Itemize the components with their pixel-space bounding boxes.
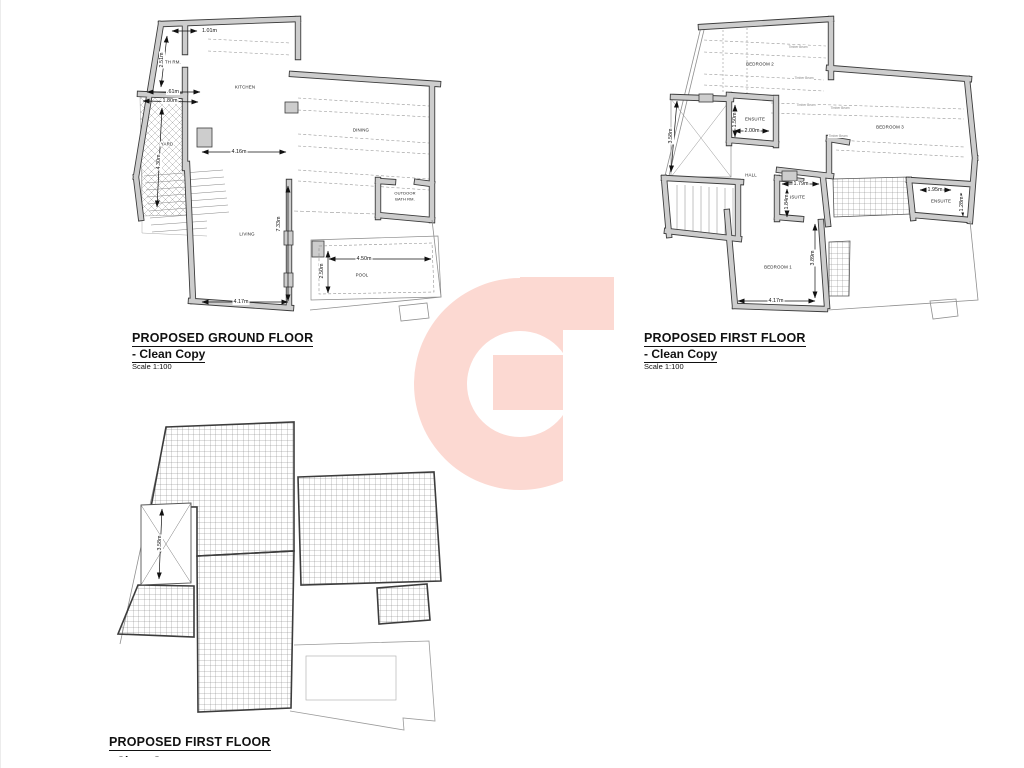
dim-label-living-w: 4.17m — [233, 299, 250, 305]
first-floor-scale: Scale 1:100 — [644, 362, 684, 371]
dim-label-yard-w: 1.80m — [162, 98, 179, 104]
room-label-ensuite-right: ENSUITE — [930, 199, 952, 204]
dim-label-bedroom1-w: 4.17m — [768, 298, 785, 304]
roof-shaft — [141, 503, 191, 585]
dim-label-ensuiteL-w: 1.79m — [793, 181, 810, 187]
timber-beam-note: Timber Beam — [830, 106, 850, 110]
dim-label-ensuiteR-h: 1.28m — [959, 196, 965, 213]
floor-plan-drawing — [1, 0, 1024, 768]
first-dimension-lines — [671, 101, 963, 301]
first-site-outline — [828, 221, 978, 319]
timber-beam-note: Timber Beam — [828, 134, 848, 138]
room-label-living: LIVING — [239, 232, 254, 237]
timber-beam-note: Timber Beam — [788, 45, 808, 49]
room-label-hall: HALL — [745, 173, 757, 178]
room-label-kitchen: KITCHEN — [235, 85, 255, 90]
timber-beam-note: Timber Beam — [794, 76, 814, 80]
ground-floor-scale: Scale 1:100 — [132, 362, 172, 371]
ground-site-outline — [310, 220, 441, 321]
room-label-ensuite-2: ENSUITE — [744, 117, 766, 122]
room-label-outdoor-bath-2: BATH RM. — [395, 197, 415, 202]
dim-label-ensuiteR-w: 1.95m — [927, 187, 944, 193]
dim-label-bath-w: .61m — [166, 89, 180, 95]
room-label-yard: YARD — [160, 142, 174, 147]
roof-plan-title: PROPOSED FIRST FLOOR — [109, 736, 271, 751]
dim-label-ensuite2-w: 2.00m — [744, 128, 761, 134]
room-label-bedroom1: BEDROOM 1 — [764, 265, 792, 270]
room-label-dining: DINING — [353, 128, 369, 133]
ground-floor-subtitle: - Clean Copy — [132, 348, 205, 363]
dim-label-pool-h: 2.50m — [319, 263, 325, 280]
ground-floor-title: PROPOSED GROUND FLOOR — [132, 332, 313, 347]
roof-terrace-outline — [290, 641, 435, 730]
first-parapet — [664, 27, 731, 236]
dim-label-ensuite2-h: 1.50m — [732, 112, 738, 129]
dim-label-top: 1.01m — [201, 28, 218, 34]
ground-pillars — [197, 102, 324, 287]
roof-plan-scale-clipped: Scale 1:100 — [109, 762, 199, 768]
ground-beam-lines — [208, 39, 429, 214]
roof-plan-subtitle-clipped: - Clean Copy — [109, 752, 239, 757]
dim-label-ensuiteL-h: 1.84m — [784, 194, 790, 211]
timber-beam-note: Timber Beam — [796, 103, 816, 107]
room-label-bedroom3: BEDROOM 3 — [876, 125, 904, 130]
dim-label-living-h: 7.33m — [276, 216, 282, 233]
first-floor-subtitle: - Clean Copy — [644, 348, 717, 363]
dim-label-shaft-h-first: 3.58m — [668, 128, 674, 145]
g-logo-watermark — [414, 277, 635, 496]
dim-label-yard-h: 4.30m — [156, 154, 162, 171]
dim-label-kitchen-w: 4.16m — [231, 149, 248, 155]
roof-plan — [118, 422, 441, 730]
first-hatched-areas — [829, 177, 911, 296]
dim-label-shaft-h-roof: 3.58m — [157, 535, 163, 552]
dim-label-bedroom1-h: 3.89m — [810, 250, 816, 267]
dim-label-bath-h: 2.51m — [159, 52, 165, 69]
drawing-sheet: BATH RM. KITCHEN DINING YARD LIVING OUTD… — [0, 0, 1024, 768]
room-label-pool: POOL — [356, 273, 369, 278]
room-label-bedroom2: BEDROOM 2 — [746, 62, 774, 67]
room-label-outdoor-bath-1: OUTDOOR — [394, 191, 415, 196]
dim-label-pool-w: 4.50m — [356, 256, 373, 262]
pool-outline — [311, 236, 441, 300]
first-floor-plan — [664, 19, 978, 319]
first-floor-title: PROPOSED FIRST FLOOR — [644, 332, 806, 347]
